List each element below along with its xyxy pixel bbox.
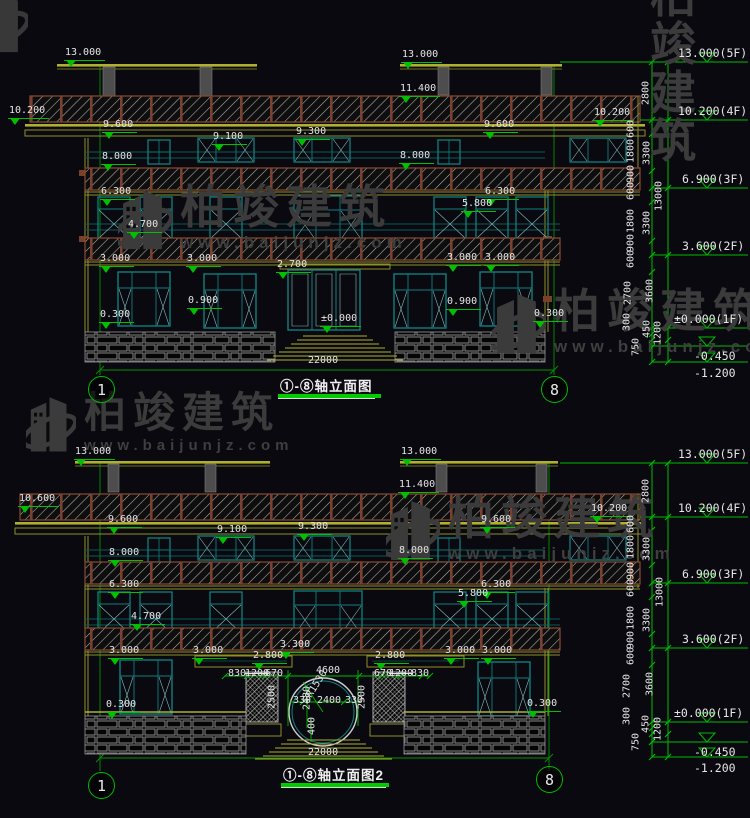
stack-level-label: -0.450 bbox=[694, 745, 736, 759]
dim-text-label: 600 bbox=[626, 120, 637, 138]
stack-level-label: 3.600(2F) bbox=[682, 632, 744, 646]
dim-text-label: 22000 bbox=[308, 747, 338, 758]
dim-text-label: 330 bbox=[345, 695, 363, 706]
dim-text-label: 750 bbox=[631, 338, 642, 356]
dim-text-label: 600 bbox=[626, 515, 637, 533]
stack-level-label: 13.000(5F) bbox=[678, 447, 747, 461]
elevation-level-label: 13.000 bbox=[74, 446, 115, 460]
dim-text-label: 330 bbox=[293, 695, 311, 706]
stack-level-label: 10.200(4F) bbox=[678, 104, 747, 118]
dim-text-label: 2400 bbox=[317, 695, 341, 706]
dim-text-label: 2800 bbox=[641, 81, 652, 105]
dim-text-label: 670 bbox=[265, 668, 283, 679]
dim-text-label: 1200 bbox=[653, 717, 664, 741]
elevation-level-label: 2.800 bbox=[374, 650, 409, 664]
axis-bubble-1: 1 bbox=[88, 376, 115, 403]
elevation-level-label: 11.400 bbox=[398, 479, 439, 493]
dim-text-label: 450 bbox=[642, 320, 653, 338]
elevation-level-label: 0.300 bbox=[99, 309, 134, 323]
elevation-level-label: 9.300 bbox=[295, 126, 330, 140]
dim-text-label: 1800 bbox=[626, 139, 637, 163]
stack-level-label: 3.600(2F) bbox=[682, 239, 744, 253]
stack-level-label: 6.900(3F) bbox=[682, 172, 744, 186]
elevation-level-label: 9.300 bbox=[297, 521, 332, 535]
dim-text-label: 600 bbox=[626, 250, 637, 268]
axis-bubble-8: 8 bbox=[541, 376, 568, 403]
elevation-level-label: 8.000 bbox=[108, 547, 143, 561]
elevation-level-label: 6.300 bbox=[100, 186, 135, 200]
stack-level-label: 13.000(5F) bbox=[678, 46, 747, 60]
elevation-level-label: 10.200 bbox=[593, 107, 634, 121]
stack-level-label: ±0.000(1F) bbox=[674, 706, 743, 720]
dim-text-label: 400 bbox=[307, 717, 318, 735]
elevation-level-label: 2.700 bbox=[276, 259, 311, 273]
drawing2-title-underline bbox=[281, 783, 389, 787]
elevation-level-label: 8.000 bbox=[101, 151, 136, 165]
stack-level-label: 6.900(3F) bbox=[682, 567, 744, 581]
elevation-level-label: 0.300 bbox=[105, 699, 140, 713]
dim-text-label: 600 bbox=[626, 647, 637, 665]
elevation-level-label: 10.200 bbox=[8, 105, 49, 119]
dim-text-label: 300 bbox=[622, 707, 633, 725]
dim-text-label: 2500 bbox=[267, 685, 278, 709]
elevation-level-label: 4.700 bbox=[127, 219, 162, 233]
elevation-level-label: 9.600 bbox=[107, 514, 142, 528]
dim-text-label: 900 bbox=[626, 165, 637, 183]
cad-elevation-sheet: 柏竣建筑 www.baijunjz.com 柏竣建筑 www.baijunjz.… bbox=[0, 0, 750, 818]
elevation-level-label: 9.600 bbox=[483, 119, 518, 133]
stack-level-label: -1.200 bbox=[694, 366, 736, 380]
dim-text-label: 1800 bbox=[626, 209, 637, 233]
elevation-level-label: 10.600 bbox=[18, 493, 59, 507]
dim-text-label: 830 bbox=[228, 668, 246, 679]
dim-text-label: 1800 bbox=[626, 606, 637, 630]
axis-bubble-1: 1 bbox=[88, 772, 115, 799]
stack-level-label: -0.450 bbox=[694, 349, 736, 363]
elevation-level-label: 13.000 bbox=[400, 446, 441, 460]
elevation-level-label: 6.300 bbox=[108, 579, 143, 593]
stack-level-label: ±0.000(1F) bbox=[674, 312, 743, 326]
dim-text-label: 1200 bbox=[389, 668, 413, 679]
axis-bubble-8: 8 bbox=[536, 766, 563, 793]
dim-text-label: 2700 bbox=[622, 674, 633, 698]
dim-text-label: 22000 bbox=[308, 355, 338, 366]
elevation-level-label: 4.700 bbox=[130, 611, 165, 625]
elevation-level-label: 0.900 bbox=[446, 296, 481, 310]
dim-text-label: 1800 bbox=[626, 535, 637, 559]
elevation-level-label: 11.400 bbox=[399, 83, 440, 97]
stack-level-label: -1.200 bbox=[694, 761, 736, 775]
elevation-level-label: 5.800 bbox=[461, 198, 496, 212]
elevation-level-label: 8.000 bbox=[399, 150, 434, 164]
elevation-level-label: 3.000 bbox=[484, 252, 519, 266]
elevation-level-label: 9.100 bbox=[216, 524, 251, 538]
dim-text-label: 3300 bbox=[642, 211, 653, 235]
dim-text-label: 3600 bbox=[645, 279, 656, 303]
dim-text-label: 600 bbox=[626, 579, 637, 597]
dim-text-label: 13000 bbox=[655, 577, 666, 607]
drawing1-title-underline bbox=[278, 394, 381, 398]
stack-level-label: 10.200(4F) bbox=[678, 501, 747, 515]
dim-text-label: 900 bbox=[626, 562, 637, 580]
dim-text-label: 3300 bbox=[642, 608, 653, 632]
dim-text-label: 3600 bbox=[645, 672, 656, 696]
elevation-level-label: 0.300 bbox=[533, 308, 568, 322]
dim-text-label: 600 bbox=[626, 182, 637, 200]
elevation-level-label: 3.000 bbox=[192, 645, 227, 659]
elevation-level-label: 13.000 bbox=[64, 47, 105, 61]
dim-text-label: 2800 bbox=[641, 479, 652, 503]
dim-text-label: 2700 bbox=[623, 281, 634, 305]
dim-text-label: 830 bbox=[411, 668, 429, 679]
dim-text-label: 300 bbox=[622, 313, 633, 331]
elevation-level-label: 2.800 bbox=[252, 650, 287, 664]
dim-text-label: 3300 bbox=[642, 537, 653, 561]
elevation-level-label: 13.000 bbox=[401, 49, 442, 63]
dim-text-label: 750 bbox=[631, 733, 642, 751]
elevation-level-label: 3.000 bbox=[446, 252, 481, 266]
elevation-level-label: 3.000 bbox=[481, 645, 516, 659]
dim-text-label: 1200 bbox=[653, 321, 664, 345]
elevation-level-label: 9.100 bbox=[212, 131, 247, 145]
elevation-level-label: 9.600 bbox=[480, 514, 515, 528]
dim-text-label: 450 bbox=[641, 715, 652, 733]
elevation-level-label: 3.000 bbox=[108, 645, 143, 659]
elevation-level-label: 0.300 bbox=[526, 698, 561, 712]
elevation-level-label: 8.000 bbox=[398, 545, 433, 559]
dim-text-label: 13000 bbox=[654, 181, 665, 211]
drawing2-title: ①-⑧轴立面图2 bbox=[281, 764, 386, 784]
drawing1-title: ①-⑧轴立面图 bbox=[278, 375, 375, 395]
elevation-level-label: ±0.000 bbox=[320, 313, 361, 327]
dim-text-label: 3300 bbox=[642, 141, 653, 165]
elevation-level-label: 3.000 bbox=[186, 253, 221, 267]
elevation-level-label: 3.000 bbox=[99, 253, 134, 267]
elevation-level-label: 9.600 bbox=[102, 119, 137, 133]
elevation-level-label: 0.900 bbox=[187, 295, 222, 309]
elevation-level-label: 5.800 bbox=[457, 588, 492, 602]
elevation-level-label: 3.000 bbox=[444, 645, 479, 659]
